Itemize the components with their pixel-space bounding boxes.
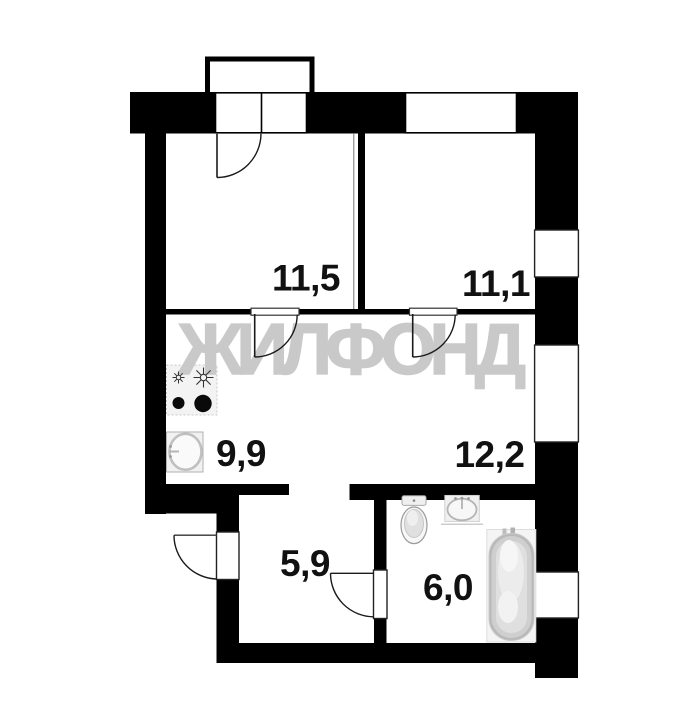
svg-text:11,1: 11,1 — [462, 263, 530, 304]
svg-text:ЖИЛФОНД: ЖИЛФОНД — [177, 310, 525, 390]
svg-text:9,9: 9,9 — [216, 433, 266, 474]
svg-text:11,5: 11,5 — [272, 258, 340, 299]
svg-text:12,2: 12,2 — [454, 434, 524, 475]
svg-text:5,9: 5,9 — [280, 543, 330, 584]
svg-text:6,0: 6,0 — [423, 567, 473, 608]
